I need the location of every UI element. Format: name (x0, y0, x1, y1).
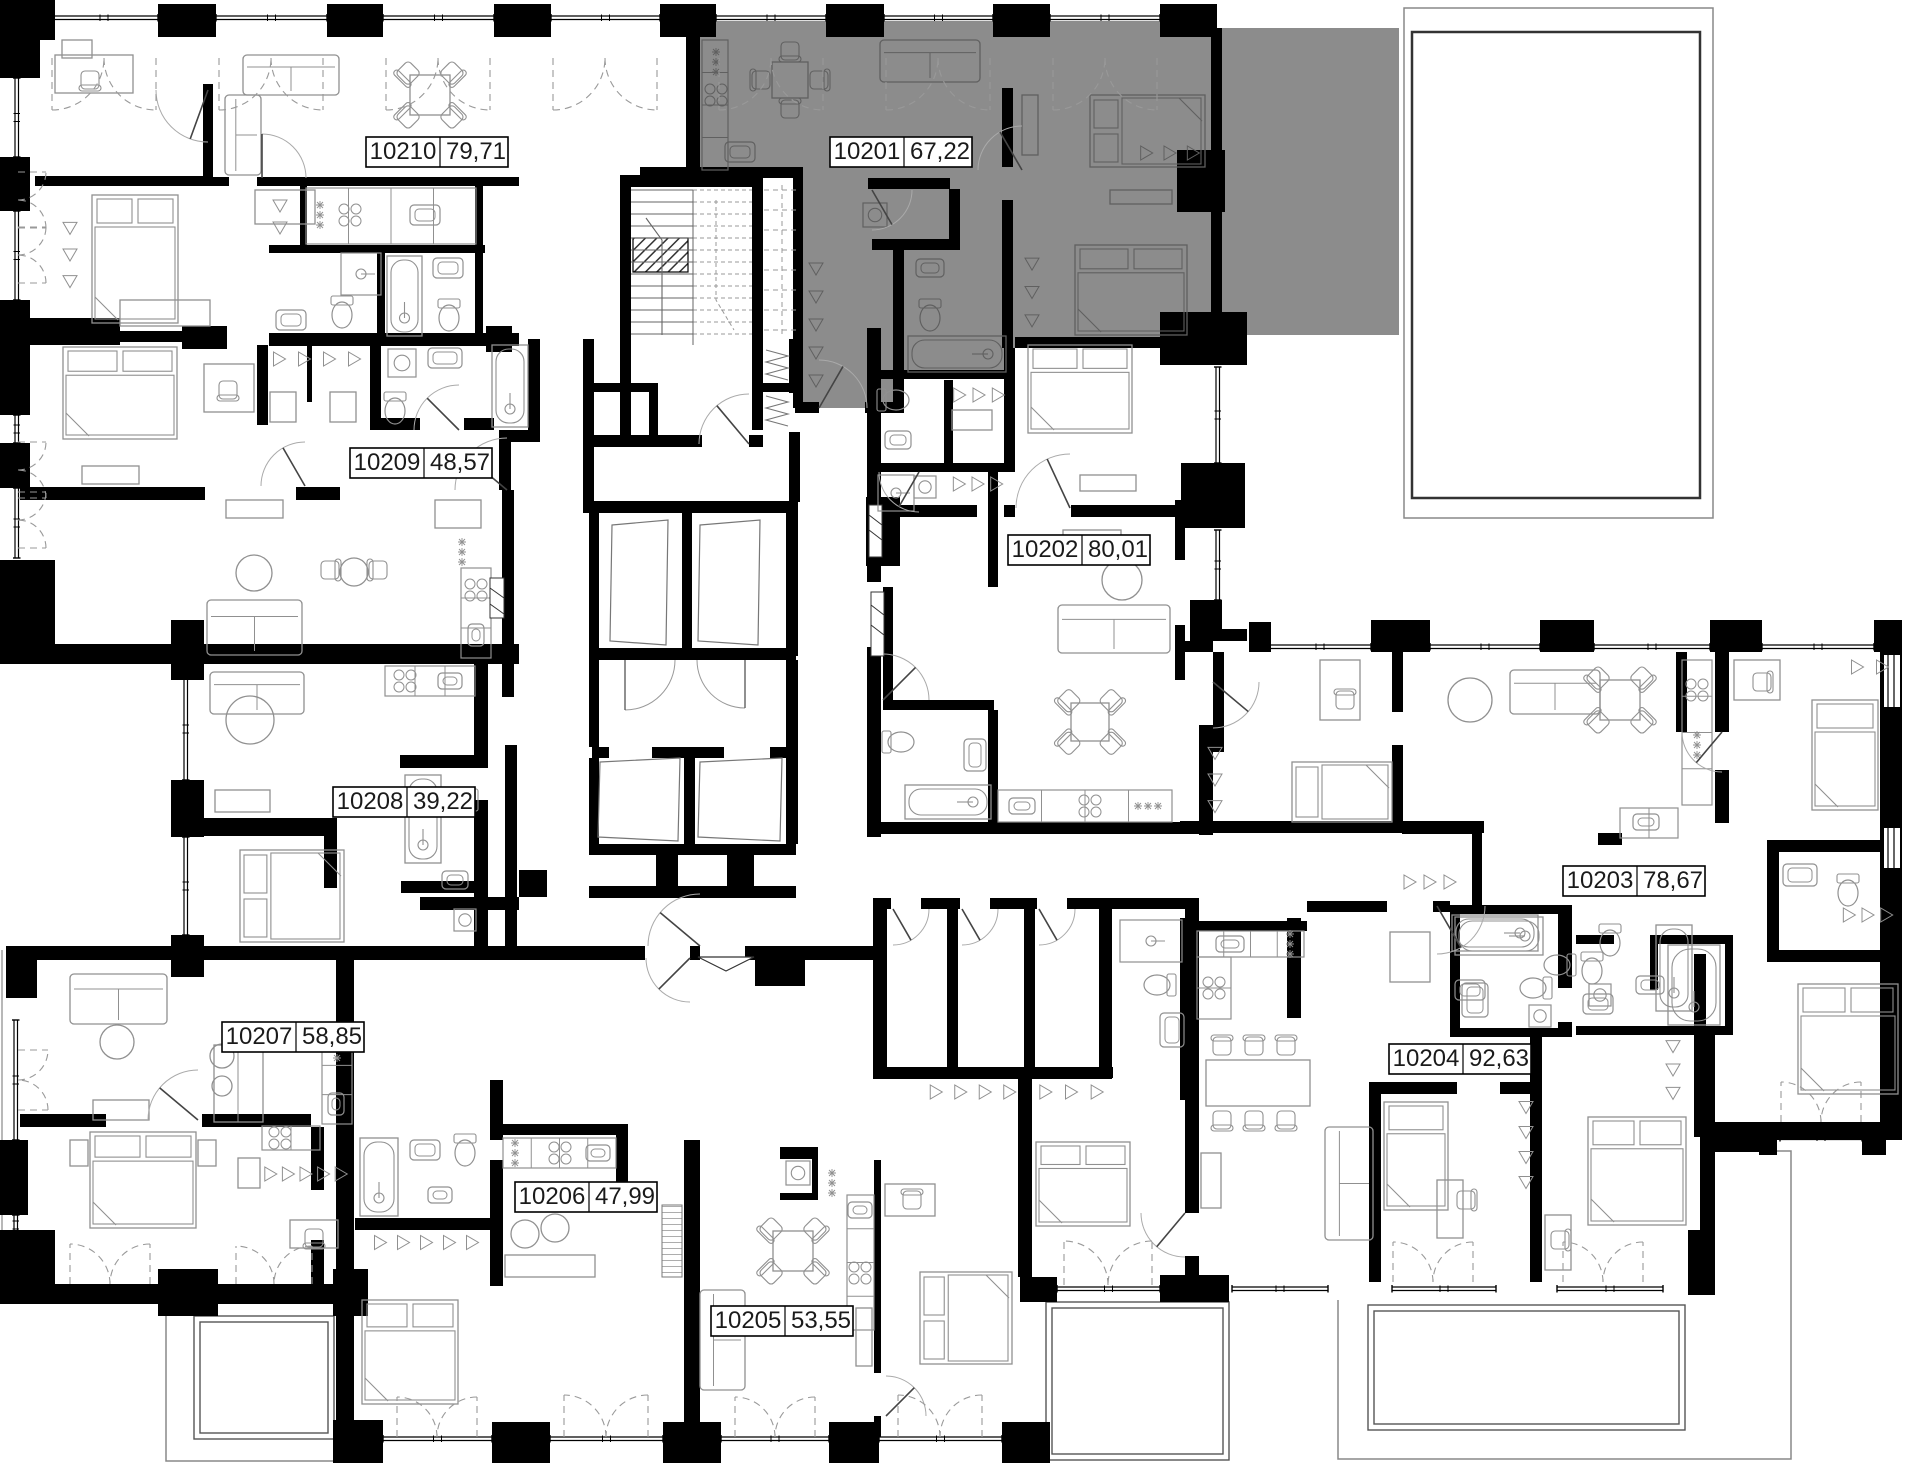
svg-text:10201: 10201 (834, 138, 901, 165)
svg-text:92,63: 92,63 (1469, 1045, 1529, 1072)
svg-text:10206: 10206 (519, 1183, 586, 1210)
svg-text:80,01: 80,01 (1088, 536, 1148, 563)
svg-text:10204: 10204 (1393, 1045, 1460, 1072)
svg-text:10203: 10203 (1567, 867, 1634, 894)
svg-text:48,57: 48,57 (430, 449, 490, 476)
svg-text:53,55: 53,55 (791, 1307, 851, 1334)
svg-text:10207: 10207 (226, 1023, 293, 1050)
svg-text:78,67: 78,67 (1643, 867, 1703, 894)
svg-text:39,22: 39,22 (413, 788, 473, 815)
svg-text:10209: 10209 (354, 449, 421, 476)
svg-text:10205: 10205 (715, 1307, 782, 1334)
svg-text:58,85: 58,85 (302, 1023, 362, 1050)
svg-text:47,99: 47,99 (595, 1183, 655, 1210)
svg-text:79,71: 79,71 (446, 138, 506, 165)
svg-text:67,22: 67,22 (910, 138, 970, 165)
svg-text:10202: 10202 (1012, 536, 1079, 563)
svg-text:10210: 10210 (370, 138, 437, 165)
svg-text:10208: 10208 (337, 788, 404, 815)
